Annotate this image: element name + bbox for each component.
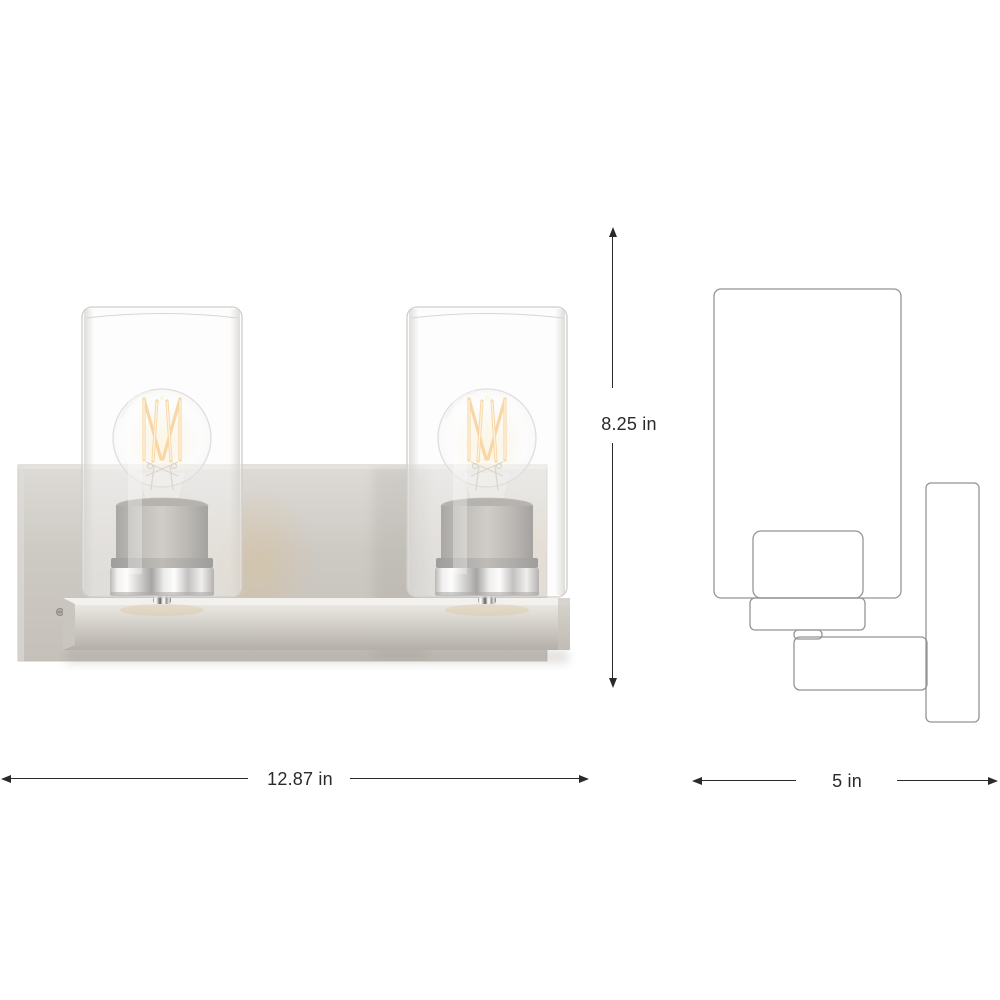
product-photo-front-view xyxy=(0,270,600,690)
height-arrow-down xyxy=(609,678,617,688)
height-line-upper xyxy=(612,237,613,388)
height-arrow-up xyxy=(609,227,617,237)
width-dimension-label: 12.87 in xyxy=(262,769,338,790)
side-socket-holder-outline xyxy=(750,598,865,630)
side-socket-outline xyxy=(753,531,863,598)
side-wall-plate-outline xyxy=(926,483,979,722)
mounting-screw xyxy=(57,609,64,616)
height-dimension-label: 8.25 in xyxy=(596,414,662,435)
side-glass-shade-outline xyxy=(714,289,901,598)
depth-arrow-right xyxy=(988,777,998,785)
height-line-lower xyxy=(612,443,613,678)
width-line-right xyxy=(350,778,579,779)
width-arrow-left xyxy=(1,775,11,783)
right-lamp xyxy=(407,307,567,616)
left-lamp xyxy=(82,307,242,616)
glass-shade xyxy=(82,307,242,597)
product-side-view-drawing xyxy=(700,280,992,730)
width-line-left xyxy=(11,778,248,779)
depth-line-left xyxy=(702,780,796,781)
product-dimension-diagram: 8.25 in 12.87 in 5 in xyxy=(0,0,1000,1000)
width-arrow-right xyxy=(579,775,589,783)
depth-dimension-label: 5 in xyxy=(814,771,880,792)
depth-line-right xyxy=(897,780,988,781)
side-arm-outline xyxy=(794,637,927,690)
depth-arrow-left xyxy=(692,777,702,785)
